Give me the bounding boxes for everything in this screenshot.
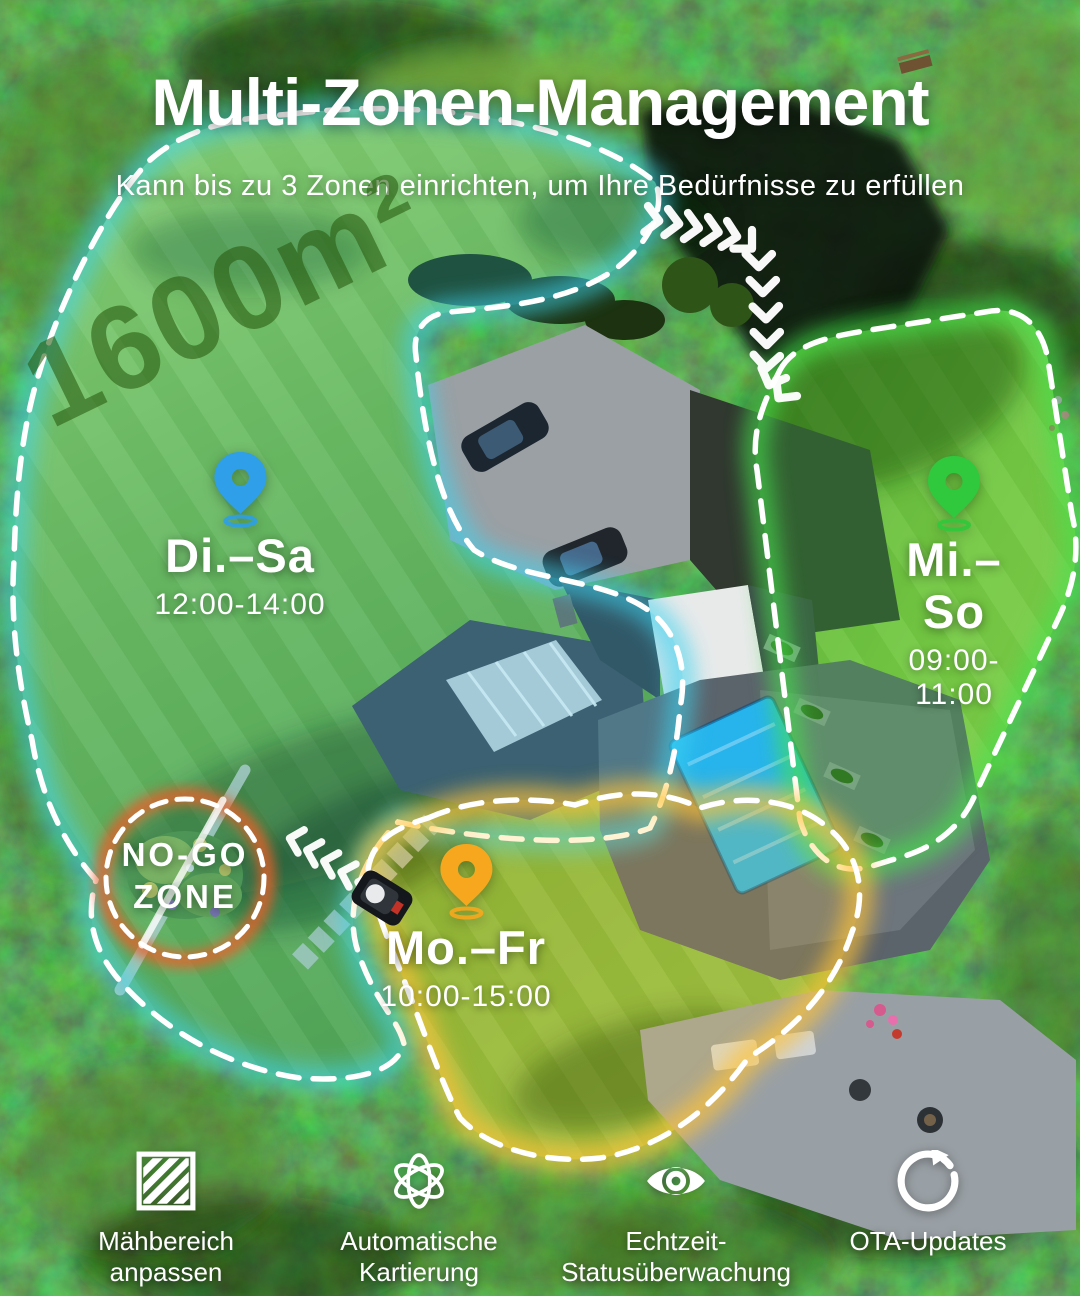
- feature-ota-updates: OTA-Updates: [763, 1150, 1080, 1257]
- zone-label-green: Mi.–So 09:00-11:00: [891, 450, 1017, 712]
- feature-label-line2: Statusüberwachung: [511, 1257, 841, 1288]
- realtime-monitoring-eye-icon: [645, 1150, 707, 1212]
- zone-time: 12:00-14:00: [154, 588, 325, 622]
- no-go-line1: NO-GO: [122, 834, 249, 876]
- page-title: Multi-Zonen-Management: [0, 64, 1080, 140]
- no-go-line2: ZONE: [122, 876, 249, 918]
- zone-days: Mi.–So: [891, 534, 1017, 638]
- map-pin-icon: [436, 838, 496, 920]
- hatched-area-icon: [135, 1150, 197, 1212]
- map-pin-icon: [924, 450, 984, 532]
- zone-days: Mo.–Fr: [380, 922, 551, 974]
- auto-mapping-icon: [388, 1150, 450, 1212]
- zone-time: 10:00-15:00: [380, 980, 551, 1014]
- ota-update-icon: [897, 1150, 959, 1212]
- zone-time: 09:00-11:00: [891, 644, 1017, 712]
- zone-label-blue: Di.–Sa 12:00-14:00: [154, 446, 325, 622]
- no-go-zone-label: NO-GO ZONE: [122, 834, 249, 918]
- page-subtitle: Kann bis zu 3 Zonen einrichten, um Ihre …: [0, 170, 1080, 203]
- feature-label-line1: OTA-Updates: [763, 1226, 1080, 1257]
- zone-label-yellow: Mo.–Fr 10:00-15:00: [380, 838, 551, 1014]
- map-pin-icon: [210, 446, 270, 528]
- zone-days: Di.–Sa: [154, 530, 325, 582]
- poster: Multi-Zonen-Management Kann bis zu 3 Zon…: [0, 0, 1080, 1296]
